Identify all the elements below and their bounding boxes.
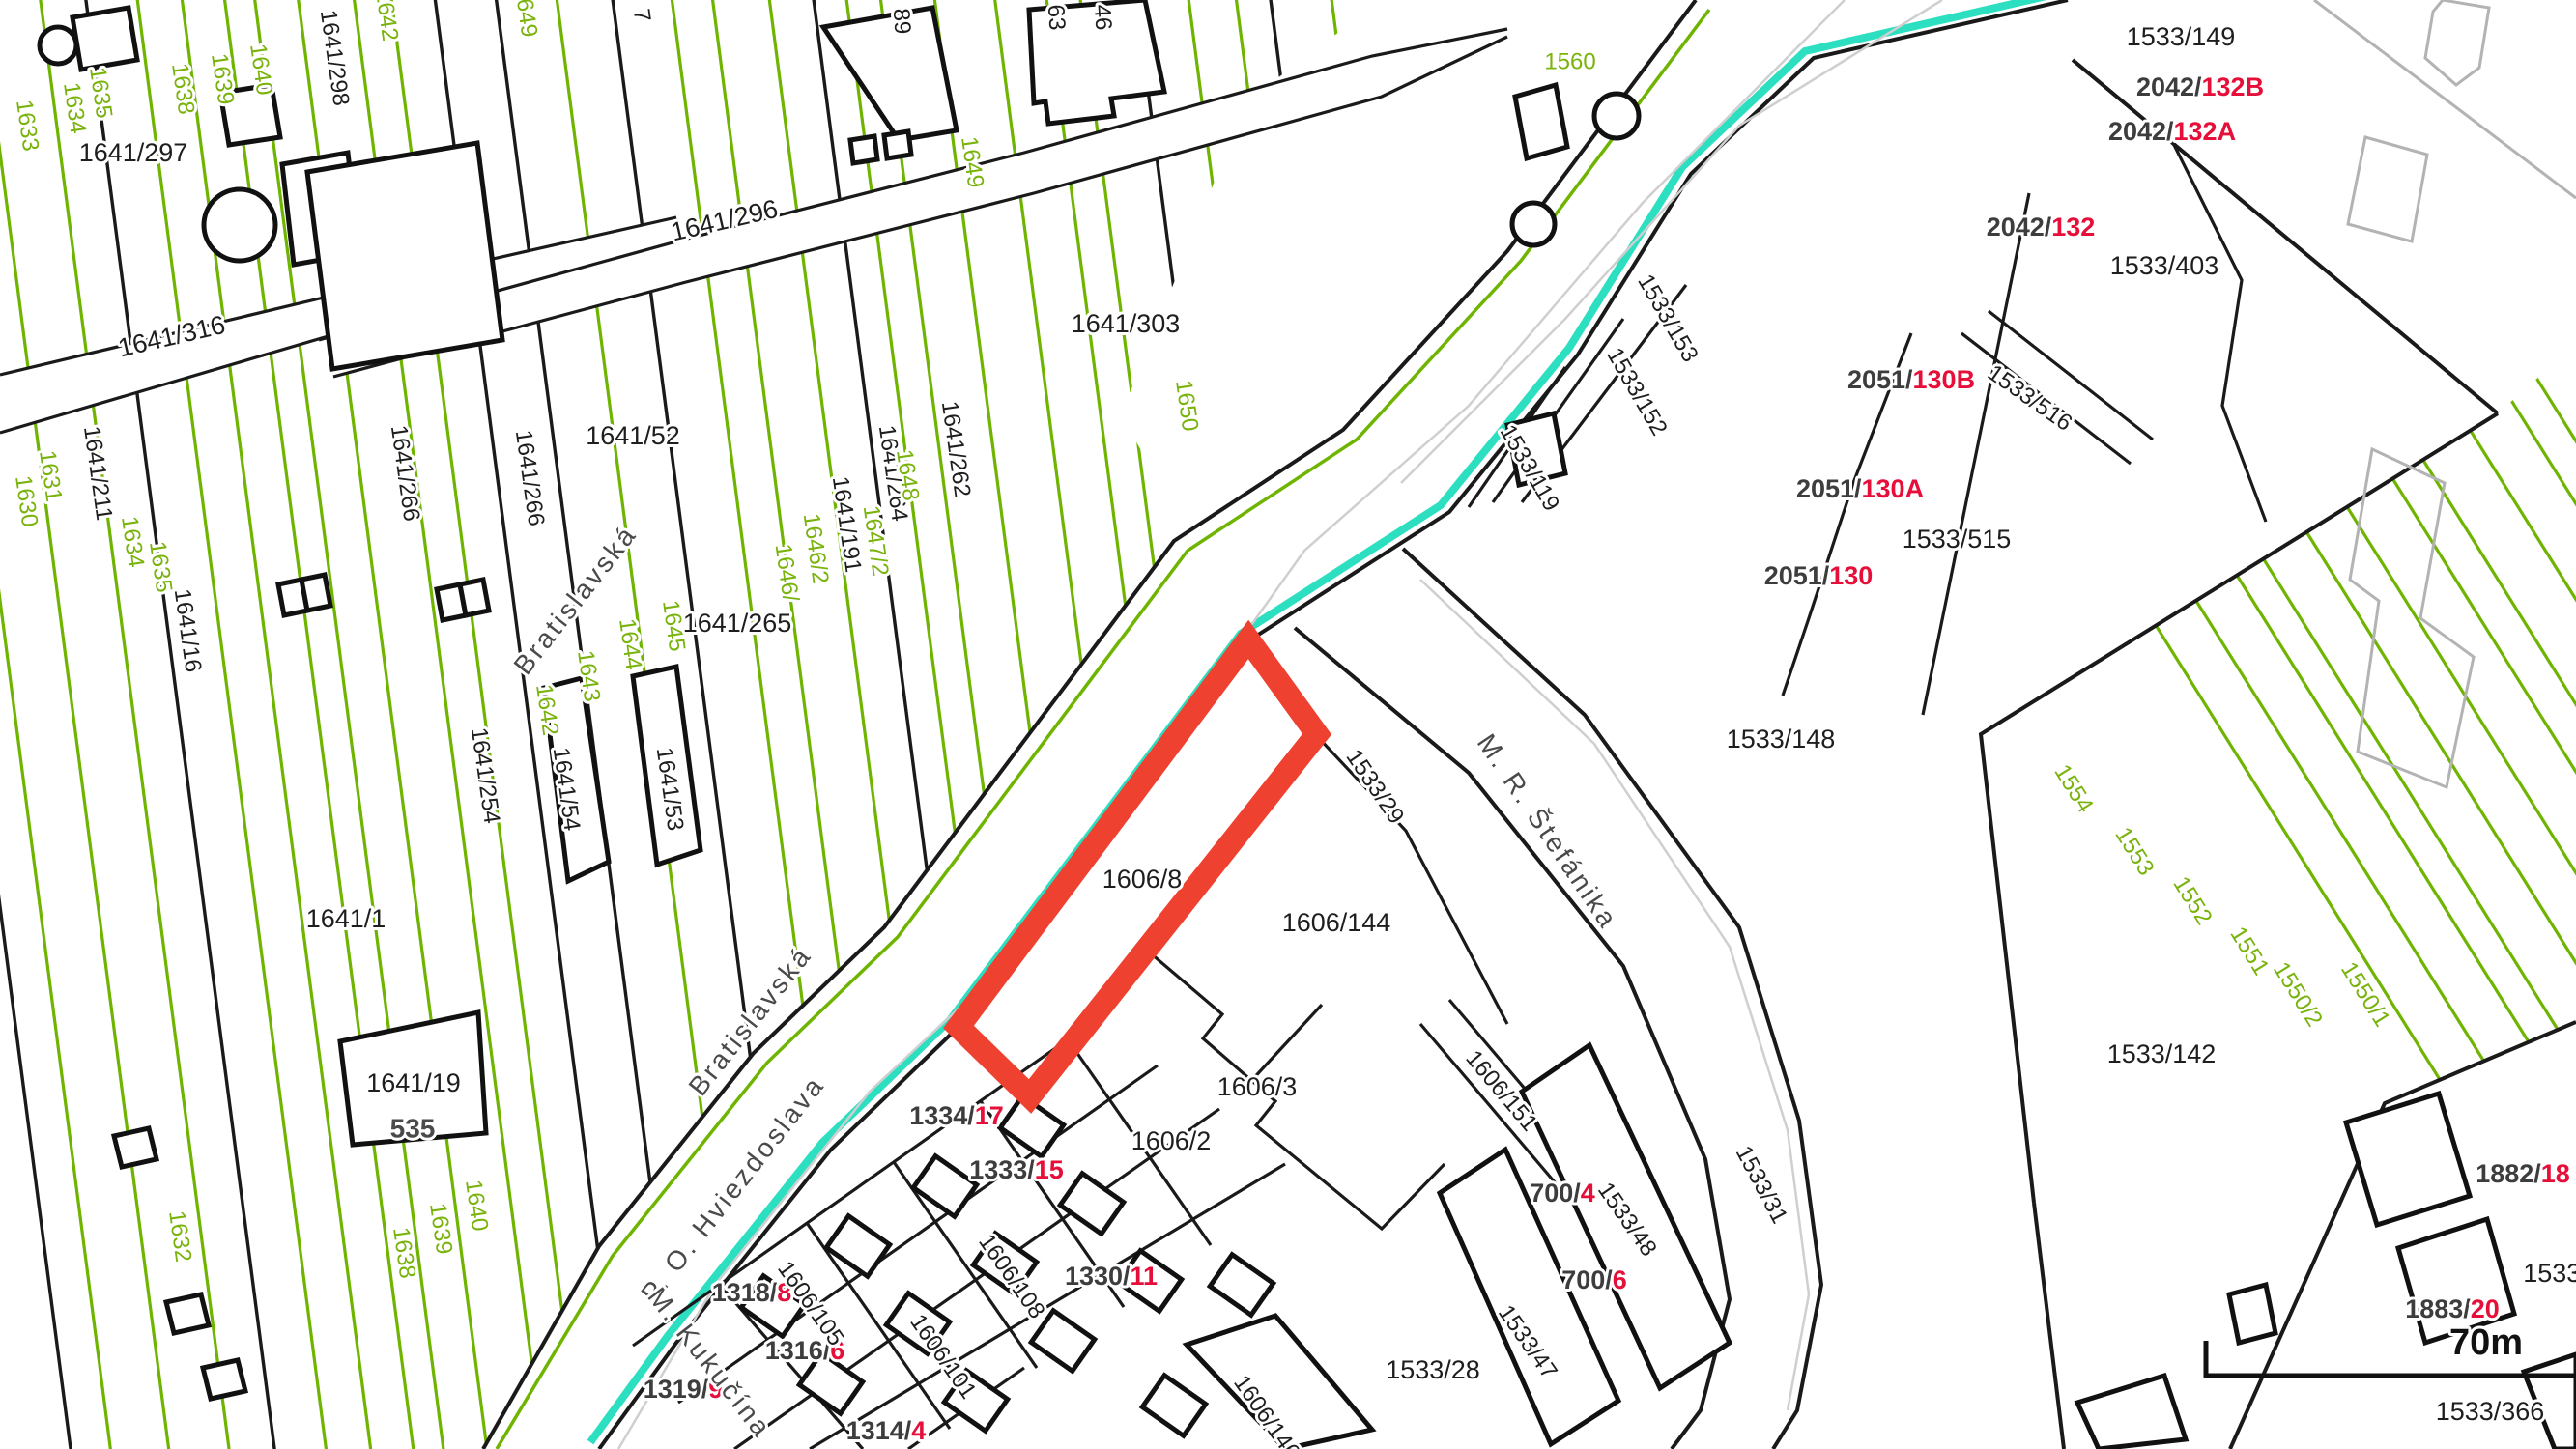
label-1649: 1649: [509, 0, 542, 39]
cadastral-map-canvas[interactable]: 70m 163316341635163816391640164216497896…: [0, 0, 2576, 1449]
label-1533-152: 1533/152: [1601, 343, 1672, 440]
label-2051-130A: 2051/130A: [1796, 474, 1924, 503]
label-1641-262: 1641/262: [936, 399, 976, 498]
label-1333-15: 1333/15: [969, 1155, 1064, 1184]
label-1641-254: 1641/254: [466, 725, 505, 825]
label-1533-29: 1533/29: [1341, 745, 1410, 829]
label-1638: 1638: [166, 62, 199, 117]
label-89: 89: [888, 8, 916, 36]
label-46: 46: [1089, 4, 1117, 32]
label-1552: 1552: [2167, 872, 2217, 930]
label-1641-297: 1641/297: [79, 138, 188, 167]
label-1606-3: 1606/3: [1217, 1072, 1298, 1101]
label-1533-516: 1533/516: [1983, 359, 2076, 437]
label-535: 535: [390, 1113, 436, 1143]
label-1533-403: 1533/403: [2110, 251, 2219, 280]
label-1641-16: 1641/16: [169, 587, 207, 674]
label-7: 7: [628, 7, 656, 23]
label-1632: 1632: [163, 1209, 196, 1264]
label-1533-366: 1533/366: [2436, 1397, 2545, 1426]
label-1550-2: 1550/2: [2268, 957, 2328, 1032]
label-1641-266: 1641/266: [386, 423, 425, 523]
label-1318-8: 1318/8: [712, 1278, 792, 1307]
label-1641-211: 1641/211: [78, 424, 117, 522]
label-1641-298: 1641/298: [315, 8, 355, 107]
label-2051-130B: 2051/130B: [1847, 365, 1975, 394]
scale-label: 70m: [2449, 1322, 2523, 1363]
label-700-4: 700/4: [1530, 1179, 1595, 1207]
label-1641-266: 1641/266: [510, 428, 550, 527]
label-1882-18: 1882/18: [2476, 1159, 2570, 1188]
label-1639: 1639: [424, 1202, 457, 1257]
label-1606-8: 1606/8: [1102, 865, 1183, 894]
label-1533-153: 1533/153: [1632, 270, 1703, 366]
label-1641-303: 1641/303: [1072, 309, 1181, 338]
label-1551: 1551: [2224, 923, 2274, 980]
label-1606-144: 1606/144: [1282, 908, 1391, 937]
label-1554: 1554: [2048, 760, 2098, 818]
label-1640: 1640: [460, 1179, 493, 1234]
label-1533-142: 1533/142: [2107, 1039, 2217, 1068]
gray-building-outlines: [2348, 0, 2489, 787]
label-1883-20: 1883/20: [2405, 1294, 2500, 1323]
label-1635: 1635: [144, 540, 177, 595]
map-viewport[interactable]: 70m 163316341635163816391640164216497896…: [0, 0, 2576, 1449]
strip-parcels-right-field: [1946, 290, 2576, 1372]
label-1330-11: 1330/11: [1065, 1262, 1158, 1291]
label-1641-1: 1641/1: [306, 904, 386, 933]
label-1533-149: 1533/149: [2127, 22, 2236, 51]
label-1533-515: 1533/515: [1903, 525, 2012, 554]
label-1633: 1633: [11, 99, 43, 154]
label-700-6: 700/6: [1561, 1265, 1627, 1294]
label-1642: 1642: [370, 0, 403, 43]
label-1646-2: 1646/2: [798, 512, 834, 585]
label-2051-130: 2051/130: [1764, 561, 1874, 590]
label-1644: 1644: [614, 617, 646, 672]
label-1634: 1634: [116, 515, 149, 570]
label-2042-132: 2042/132: [1987, 213, 2096, 241]
label-1606-2: 1606/2: [1131, 1126, 1212, 1155]
label-2042-132A: 2042/132A: [2108, 117, 2236, 146]
label-1533-: 1533/: [2523, 1259, 2576, 1288]
label-1314-4: 1314/4: [846, 1416, 927, 1445]
label-63: 63: [1043, 4, 1071, 32]
label-1553: 1553: [2109, 823, 2159, 881]
label-1630: 1630: [10, 474, 43, 529]
label-2042-132B: 2042/132B: [2136, 72, 2264, 101]
label-1533-148: 1533/148: [1727, 724, 1836, 753]
label-1641-52: 1641/52: [586, 421, 680, 450]
label-1646-: 1646/: [770, 542, 804, 604]
label-1641-265: 1641/265: [683, 609, 792, 638]
label-1334-17: 1334/17: [909, 1101, 1004, 1130]
label-1641-19: 1641/19: [366, 1068, 461, 1097]
label-1560: 1560: [1544, 48, 1595, 74]
label-1634: 1634: [58, 81, 91, 136]
label-1533-28: 1533/28: [1386, 1355, 1480, 1384]
